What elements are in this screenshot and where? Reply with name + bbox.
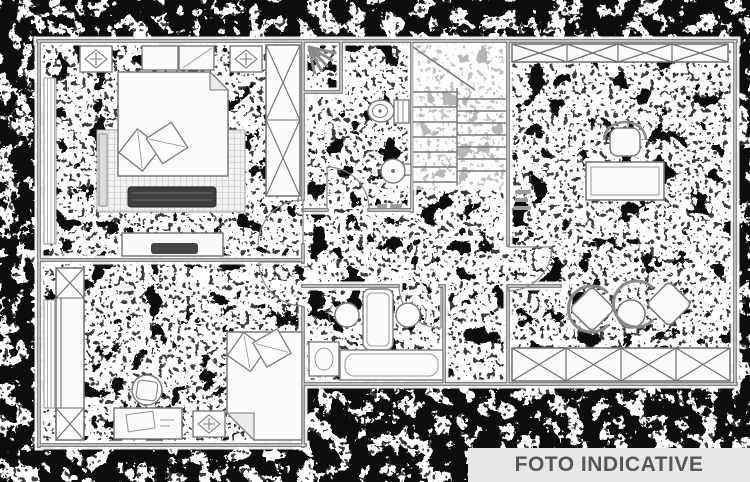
- floor-plan-drawing: [0, 0, 750, 482]
- wardrobe-bedroom1: [266, 45, 300, 196]
- shower-column: [363, 289, 393, 350]
- watermark-text: FOTO INDICATIVE: [515, 453, 704, 477]
- railing-top-study: [512, 44, 728, 62]
- staircase: [413, 44, 506, 190]
- ceiling-light: [80, 46, 112, 72]
- armchair: [568, 286, 614, 332]
- side-table: [617, 300, 645, 328]
- ceiling-light: [230, 46, 262, 72]
- desk-bedroom2: [114, 408, 182, 439]
- railing-bottom-living: [512, 348, 730, 381]
- tub-chair: [132, 375, 162, 405]
- tv-cabinet: [122, 233, 223, 256]
- toilet: [368, 100, 409, 123]
- headboard: [99, 134, 107, 206]
- wc: [309, 342, 339, 376]
- bed-bench: [128, 187, 216, 207]
- wall-cabinets: [142, 46, 214, 70]
- ceiling-light: [193, 411, 225, 437]
- wardrobe-bedroom2: [56, 268, 84, 440]
- desk: [586, 162, 664, 200]
- watermark-banner: FOTO INDICATIVE: [468, 448, 750, 482]
- bed-1: [118, 72, 228, 176]
- window-left-bedroom1: [44, 78, 56, 244]
- bathtub: [340, 350, 443, 380]
- window-left-bedroom2: [44, 300, 56, 408]
- tv: [151, 243, 198, 254]
- bed-2: [227, 329, 302, 440]
- floor-plan-photo: FOTO INDICATIVE: [0, 0, 750, 482]
